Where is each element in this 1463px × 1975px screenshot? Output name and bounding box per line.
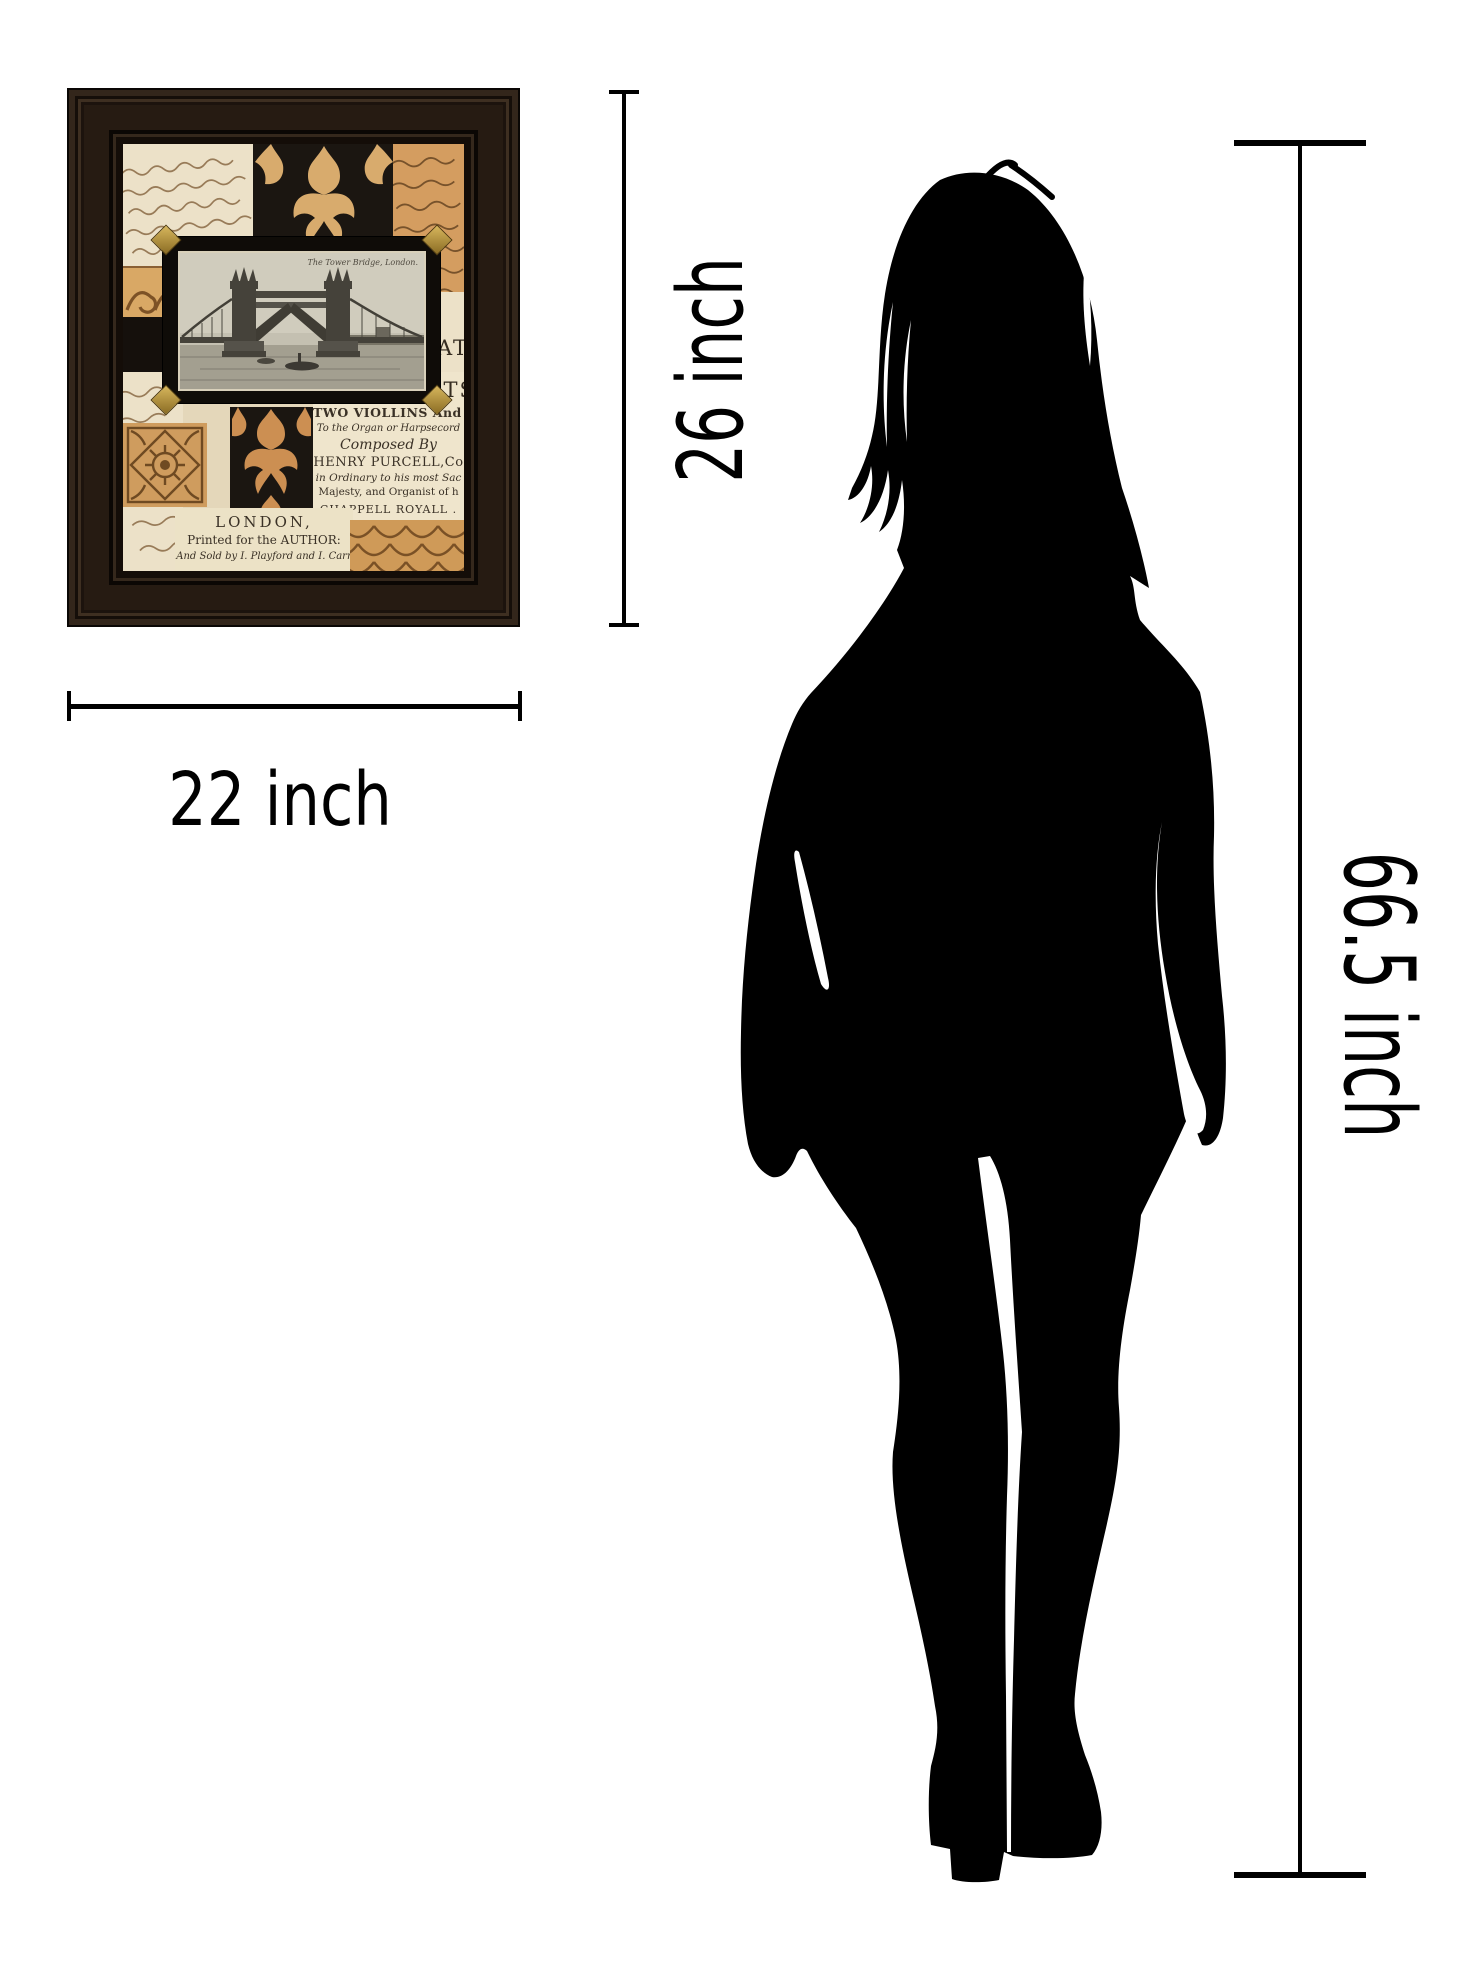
size-comparison-canvas: ATA <box>0 0 1463 1975</box>
woman-silhouette-icon <box>0 0 1463 1975</box>
